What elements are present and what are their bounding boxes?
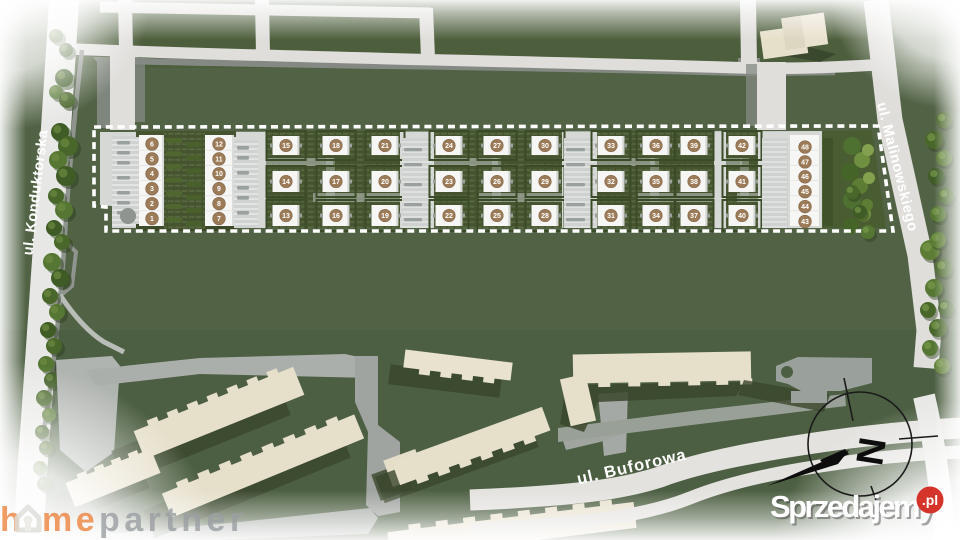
svg-text:47: 47	[801, 159, 809, 166]
svg-text:4: 4	[150, 171, 154, 178]
svg-text:Sprzedajemy: Sprzedajemy	[770, 489, 936, 524]
svg-text:35: 35	[652, 179, 660, 186]
svg-text:31: 31	[607, 213, 615, 220]
svg-text:38: 38	[690, 179, 698, 186]
svg-text:7: 7	[217, 216, 221, 223]
svg-text:32: 32	[607, 179, 615, 186]
svg-text:42: 42	[738, 143, 746, 150]
svg-text:46: 46	[801, 174, 809, 181]
svg-text:25: 25	[493, 213, 501, 220]
svg-text:24: 24	[445, 143, 453, 150]
svg-text:48: 48	[801, 144, 809, 151]
svg-text:11: 11	[215, 156, 223, 163]
svg-text:13: 13	[282, 213, 290, 220]
svg-text:8: 8	[217, 201, 221, 208]
svg-text:44: 44	[801, 204, 809, 211]
svg-text:15: 15	[282, 143, 290, 150]
svg-text:me: me	[42, 501, 98, 539]
svg-text:16: 16	[332, 213, 340, 220]
svg-text:36: 36	[652, 143, 660, 150]
svg-text:17: 17	[332, 179, 340, 186]
svg-text:34: 34	[652, 213, 660, 220]
svg-text:39: 39	[690, 143, 698, 150]
svg-text:20: 20	[381, 179, 389, 186]
svg-text:.pl: .pl	[922, 492, 938, 508]
svg-text:26: 26	[493, 179, 501, 186]
svg-text:29: 29	[541, 179, 549, 186]
svg-text:18: 18	[332, 143, 340, 150]
svg-text:41: 41	[738, 179, 746, 186]
svg-text:30: 30	[541, 143, 549, 150]
svg-text:14: 14	[282, 179, 290, 186]
svg-text:6: 6	[150, 141, 154, 148]
svg-text:12: 12	[215, 141, 223, 148]
svg-text:43: 43	[801, 219, 809, 226]
svg-text:2: 2	[150, 201, 154, 208]
svg-text:19: 19	[381, 213, 389, 220]
svg-text:3: 3	[150, 186, 154, 193]
svg-text:27: 27	[493, 143, 501, 150]
svg-text:5: 5	[150, 156, 154, 163]
svg-text:9: 9	[217, 186, 221, 193]
svg-text:22: 22	[445, 213, 453, 220]
svg-text:10: 10	[215, 171, 223, 178]
svg-text:1: 1	[150, 216, 154, 223]
svg-text:28: 28	[541, 213, 549, 220]
svg-text:23: 23	[445, 179, 453, 186]
svg-text:21: 21	[381, 143, 389, 150]
svg-text:40: 40	[738, 213, 746, 220]
svg-text:33: 33	[607, 143, 615, 150]
svg-text:45: 45	[801, 189, 809, 196]
svg-text:partner: partner	[99, 501, 248, 539]
svg-text:37: 37	[690, 213, 698, 220]
